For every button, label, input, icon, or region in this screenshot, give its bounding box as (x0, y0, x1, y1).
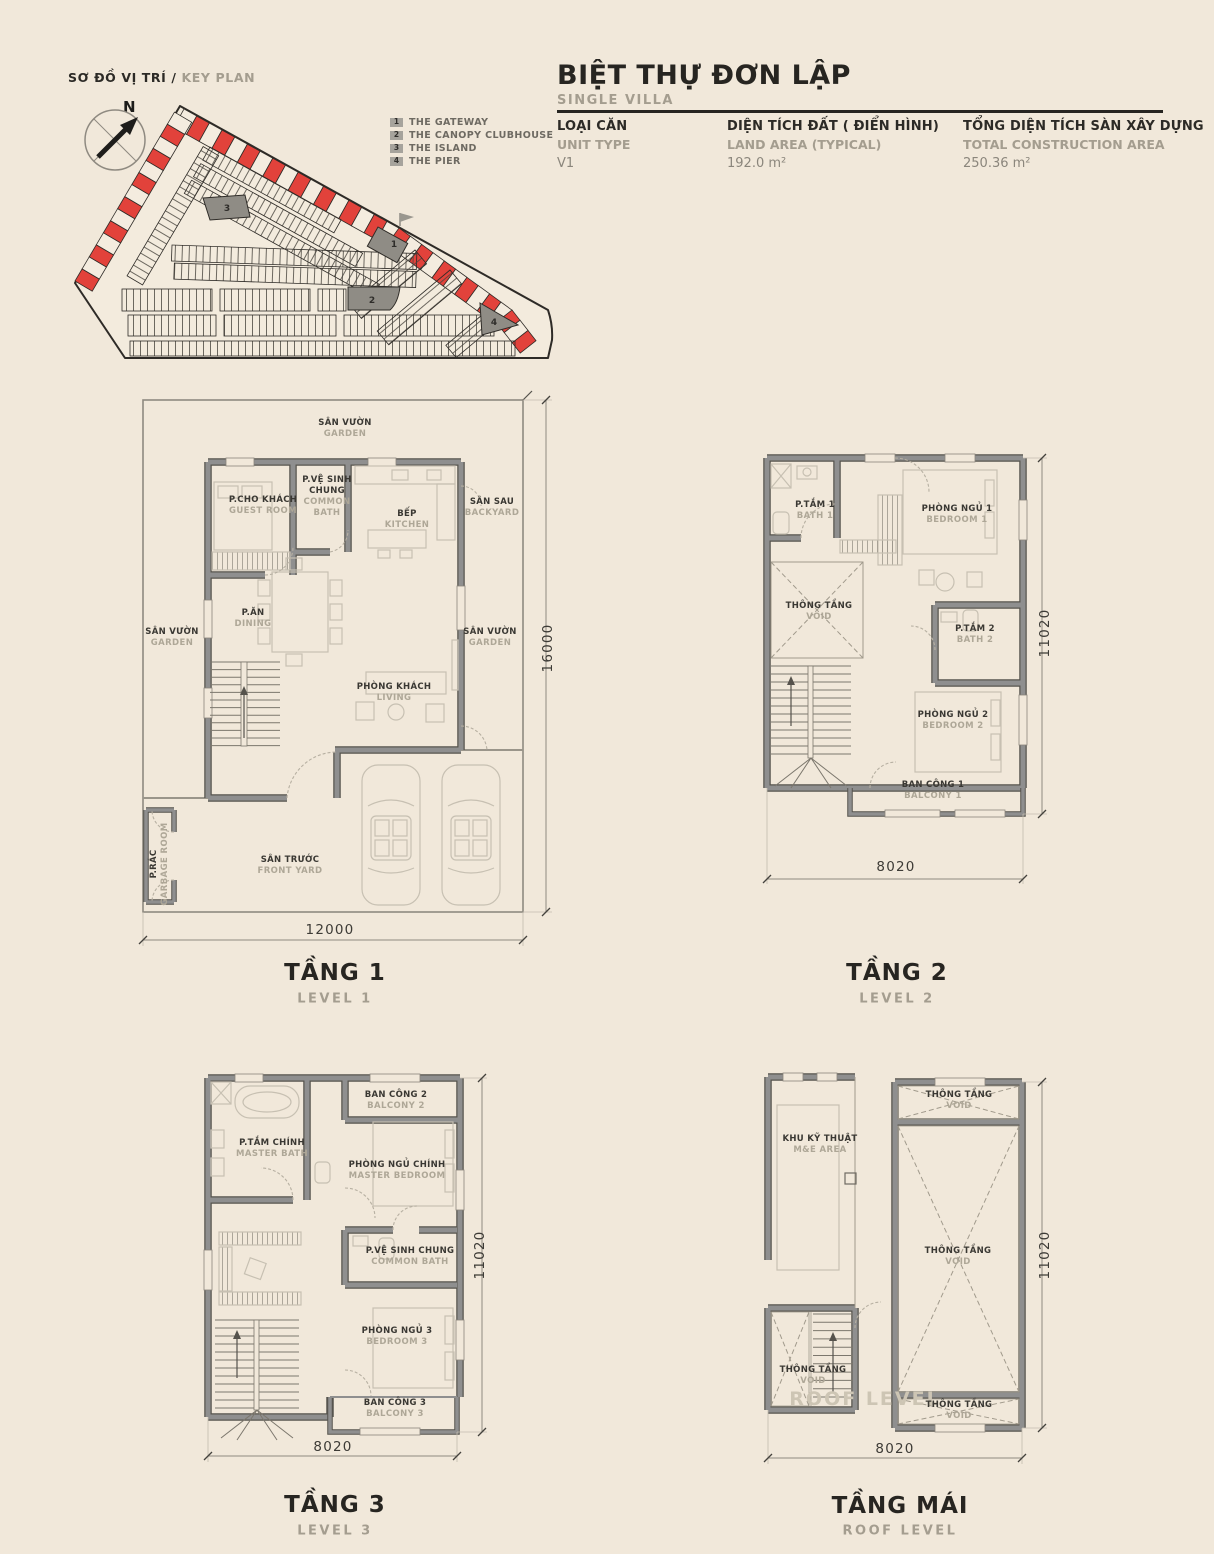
plan-subtitle-level-2: LEVEL 2 (859, 992, 934, 1007)
doors-roof (855, 1302, 881, 1328)
stairs-l2 (771, 666, 851, 788)
walls-roof (768, 1077, 1022, 1428)
dim-l3-width: 8020 (313, 1439, 352, 1455)
dim-l1-height: 16000 (540, 624, 556, 673)
plan-title-level-2: TẦNG 2 (846, 960, 948, 986)
flag-icon (400, 213, 414, 226)
plan-subtitle-roof: ROOF LEVEL (843, 1524, 958, 1539)
dim-l1-width: 12000 (306, 922, 355, 938)
plan-title-level-3: TẦNG 3 (284, 1492, 386, 1518)
plan-subtitle-level-3: LEVEL 3 (297, 1524, 372, 1539)
stairs-roof (813, 1314, 853, 1397)
header-rule (557, 110, 1163, 113)
furniture-l1 (212, 466, 458, 722)
dim-l3-height: 11020 (472, 1231, 488, 1280)
keyplan-site-map: 3 1 2 4 (60, 95, 560, 380)
void-l2 (771, 562, 863, 658)
car-2-icon (442, 765, 500, 905)
me-area-outline (777, 1105, 856, 1270)
walls-l1 (146, 462, 461, 902)
svg-text:2: 2 (369, 296, 375, 306)
stairs-l1 (210, 662, 280, 746)
keyplan-title: SƠ ĐỒ VỊ TRÍ / KEY PLAN (68, 70, 255, 85)
plan-subtitle-level-1: LEVEL 1 (297, 992, 372, 1007)
stairs-l3 (215, 1320, 299, 1440)
svg-text:4: 4 (491, 318, 497, 328)
roof-floorplan-drawing (755, 1070, 1055, 1470)
page-subtitle: SINGLE VILLA (557, 93, 674, 108)
dim-l2-width: 8020 (876, 859, 915, 875)
plan-title-roof: TẦNG MÁI (832, 1493, 969, 1519)
level-1-floorplan-drawing (130, 390, 560, 960)
dim-roof-height: 11020 (1037, 1231, 1053, 1280)
landmark-the-canopy-clubhouse: 2 (348, 287, 400, 310)
dimension-lines-l2 (763, 454, 1047, 884)
svg-text:3: 3 (224, 204, 230, 214)
svg-text:1: 1 (391, 240, 397, 250)
landmark-the-island: 3 (203, 195, 250, 220)
garden-fence (143, 750, 523, 798)
windows-roof (783, 1073, 985, 1432)
site-boundary-l1 (143, 391, 532, 912)
fixtures-l3 (211, 1082, 454, 1388)
level-3-floorplan-drawing (195, 1070, 495, 1475)
spec-construction-area: TỔNG DIỆN TÍCH SÀN XÂY DỰNG TOTAL CONSTR… (963, 119, 1183, 171)
dim-roof-width: 8020 (875, 1441, 914, 1457)
page-title: BIỆT THỰ ĐƠN LẬP (557, 60, 851, 91)
roof-level-watermark: ROOF LEVEL (789, 1388, 940, 1410)
walls-l3 (208, 1078, 460, 1432)
car-1-icon (362, 765, 420, 905)
brochure-sheet: SƠ ĐỒ VỊ TRÍ / KEY PLAN N 1THE GATEWAY 2… (0, 0, 1214, 1554)
dim-l2-height: 11020 (1037, 609, 1053, 658)
plan-title-level-1: TẦNG 1 (284, 960, 386, 986)
compass-icon (85, 110, 145, 170)
windows-l3 (204, 1074, 464, 1435)
level-2-floorplan-drawing (745, 440, 1065, 900)
spec-land-area: DIỆN TÍCH ĐẤT ( ĐIỂN HÌNH) LAND AREA (TY… (727, 119, 947, 171)
fixtures-l2 (771, 464, 1001, 772)
